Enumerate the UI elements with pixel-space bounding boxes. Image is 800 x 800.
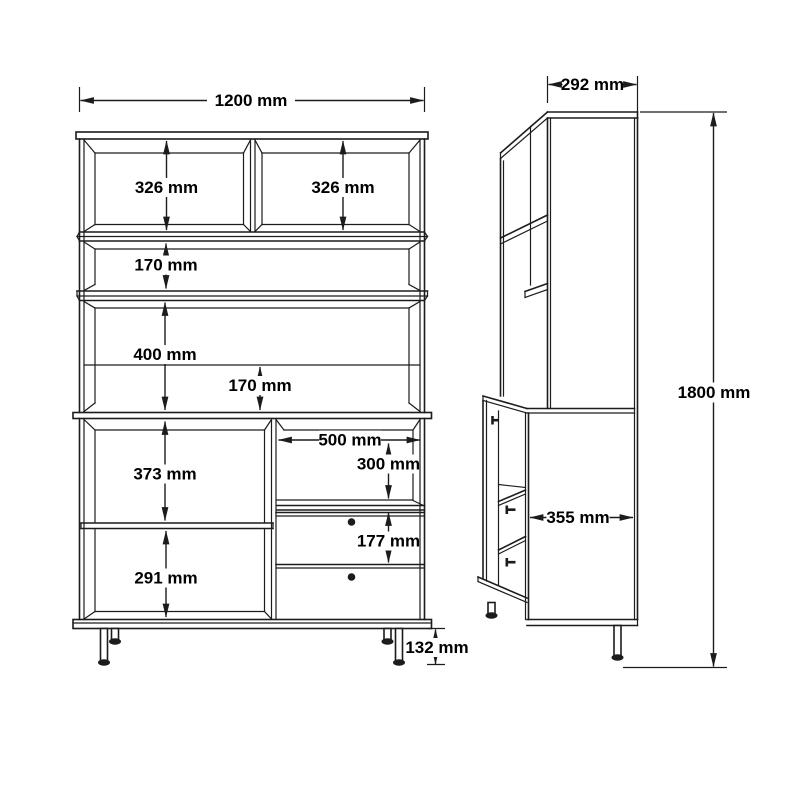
- leg-front-right: [396, 629, 403, 662]
- dim-drawer-pitch: 177 mm: [357, 513, 420, 563]
- dim-label-lower-hutch: 400 mm: [133, 345, 196, 364]
- dim-back-opening-height: 170 mm: [228, 367, 291, 410]
- dim-label-leg-height: 132 mm: [405, 638, 468, 657]
- dim-label-cabinet-left-lower: 291 mm: [134, 569, 197, 588]
- dim-top-right-shelf-height: 326 mm: [311, 141, 374, 230]
- dim-label-drawer-pitch: 177 mm: [357, 532, 420, 551]
- furniture-dimension-drawing: 1200 mm 326 mm 326 mm 170 mm 400 mm 170 …: [0, 0, 800, 800]
- dim-cabinet-left-lower: 291 mm: [134, 531, 197, 617]
- side-leg-front: [488, 603, 495, 614]
- leg-back-left: [112, 629, 119, 640]
- front-legs: [98, 629, 405, 666]
- side-top-shelf: [501, 215, 548, 238]
- dim-label-top-left-shelf: 326 mm: [135, 178, 198, 197]
- leg-front-left: [101, 629, 108, 662]
- front-counter-board: [73, 413, 432, 419]
- front-view: 1200 mm 326 mm 326 mm 170 mm 400 mm 170 …: [73, 87, 469, 666]
- dim-front-total-width: 1200 mm: [80, 87, 425, 112]
- dim-middle-shelf-gap: 170 mm: [134, 244, 197, 289]
- side-leg-back: [614, 626, 621, 656]
- drawer-knob-top: [348, 518, 356, 526]
- leg-foot: [486, 612, 498, 618]
- dim-label-niche-width: 500 mm: [318, 431, 381, 450]
- dim-leg-height: 132 mm: [405, 629, 468, 665]
- dim-niche-height: 300 mm: [357, 444, 420, 499]
- dim-label-niche-height: 300 mm: [357, 455, 420, 474]
- side-view: 292 mm 1800 mm 355 mm: [478, 75, 752, 668]
- side-door-and-drawers: [493, 416, 526, 567]
- dim-niche-width: 500 mm: [279, 431, 421, 450]
- dim-total-height: 1800 mm: [623, 112, 752, 668]
- front-top-board: [76, 132, 428, 139]
- leg-foot: [612, 654, 624, 660]
- dim-cabinet-depth: 355 mm: [530, 508, 633, 527]
- dim-label-total-width: 1200 mm: [215, 91, 288, 110]
- leg-foot: [382, 638, 394, 644]
- dim-label-top-right-shelf: 326 mm: [311, 178, 374, 197]
- leg-foot: [109, 638, 121, 644]
- side-door-handle: [493, 416, 499, 425]
- dim-label-hutch-depth: 292 mm: [561, 75, 624, 94]
- dim-label-middle-shelf-gap: 170 mm: [134, 256, 197, 275]
- front-bottom-board: [73, 620, 432, 629]
- dim-label-cabinet-left-upper: 373 mm: [133, 465, 196, 484]
- dim-hutch-depth: 292 mm: [548, 75, 638, 112]
- leg-foot: [98, 659, 110, 665]
- leg-back-right: [384, 629, 391, 640]
- leg-foot: [393, 659, 405, 665]
- dim-label-total-height: 1800 mm: [678, 383, 751, 402]
- drawer-knob-bottom: [348, 573, 356, 581]
- side-drawer-handle-top: [507, 506, 516, 515]
- technical-drawing-page: 1200 mm 326 mm 326 mm 170 mm 400 mm 170 …: [0, 0, 800, 800]
- dim-top-left-shelf-height: 326 mm: [135, 141, 198, 230]
- dim-label-cabinet-depth: 355 mm: [546, 508, 609, 527]
- dim-cabinet-left-upper: 373 mm: [133, 422, 196, 521]
- dim-label-back-opening: 170 mm: [228, 376, 291, 395]
- side-drawer-handle-bottom: [507, 558, 516, 567]
- side-legs: [486, 603, 624, 661]
- dim-lower-hutch-height: 400 mm: [133, 303, 196, 411]
